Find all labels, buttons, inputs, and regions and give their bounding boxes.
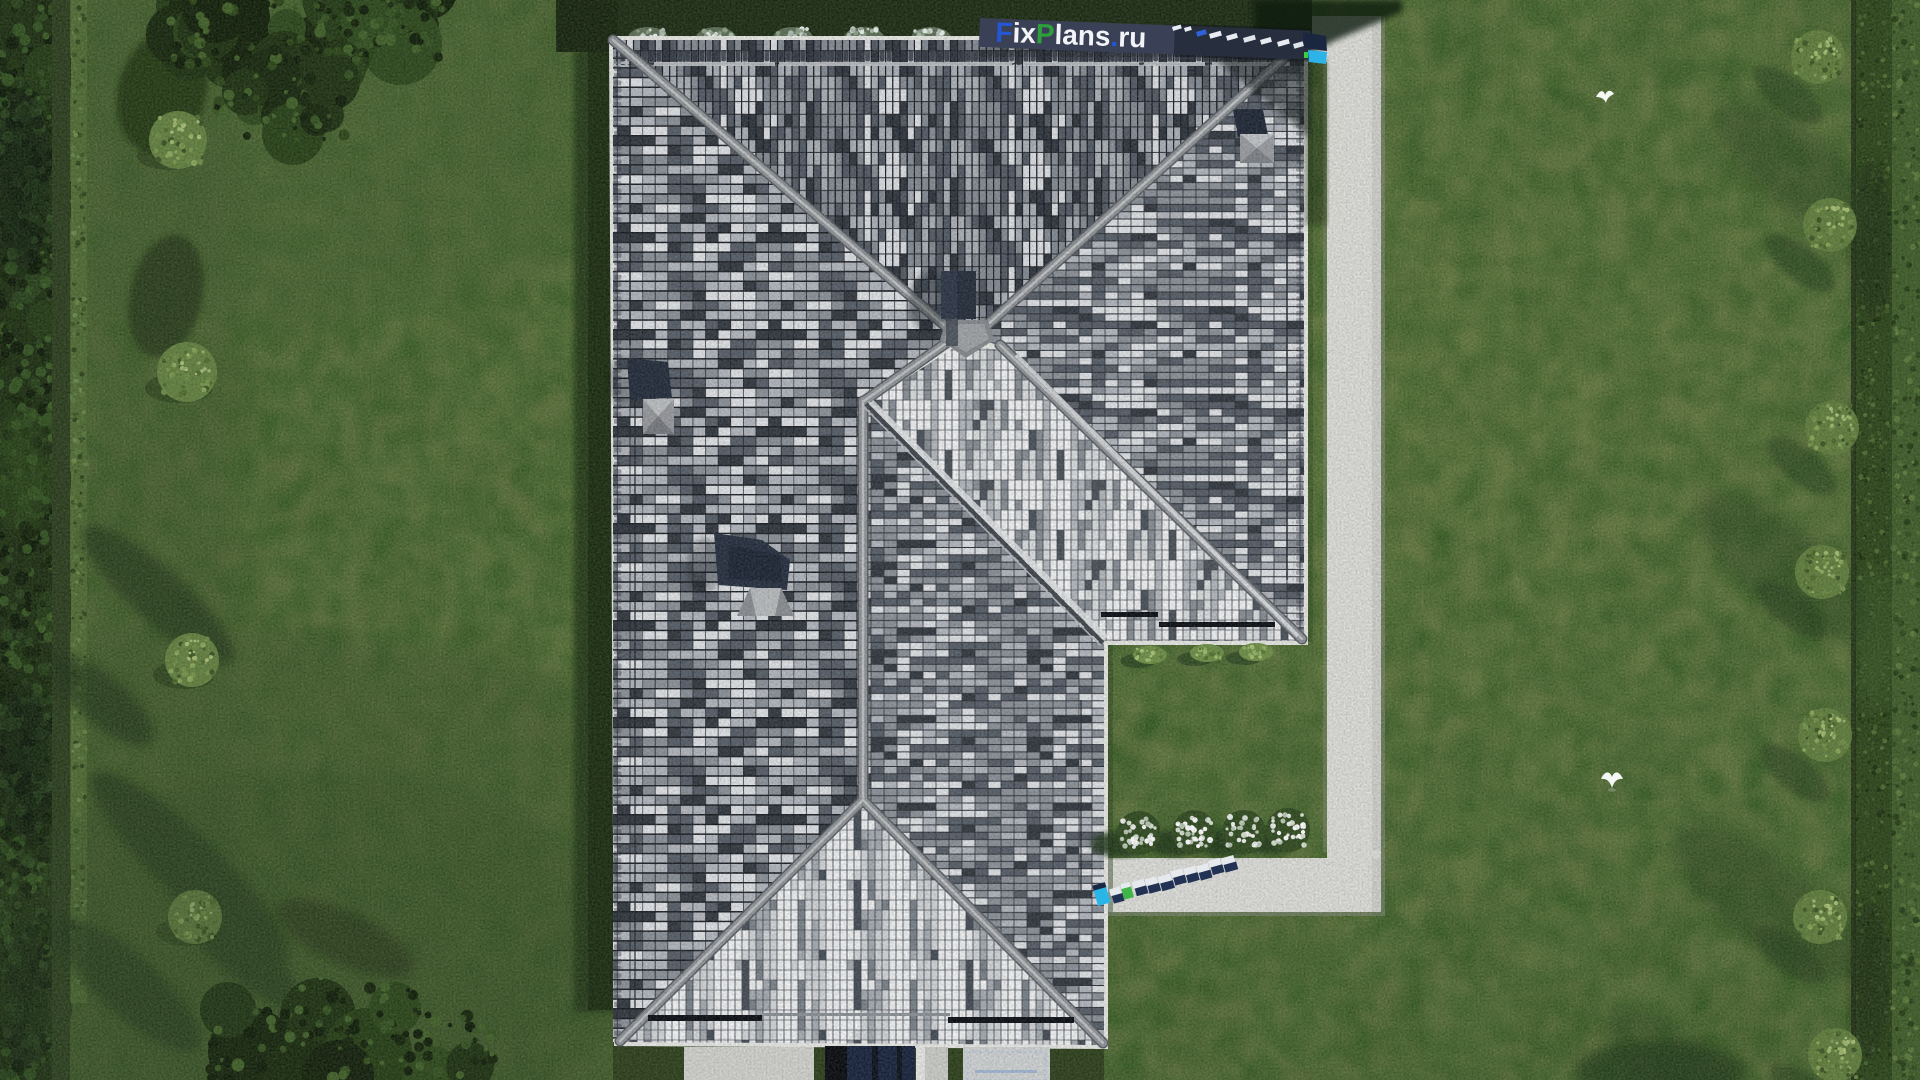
svg-text:FixPlans.ru: FixPlans.ru: [995, 17, 1147, 54]
